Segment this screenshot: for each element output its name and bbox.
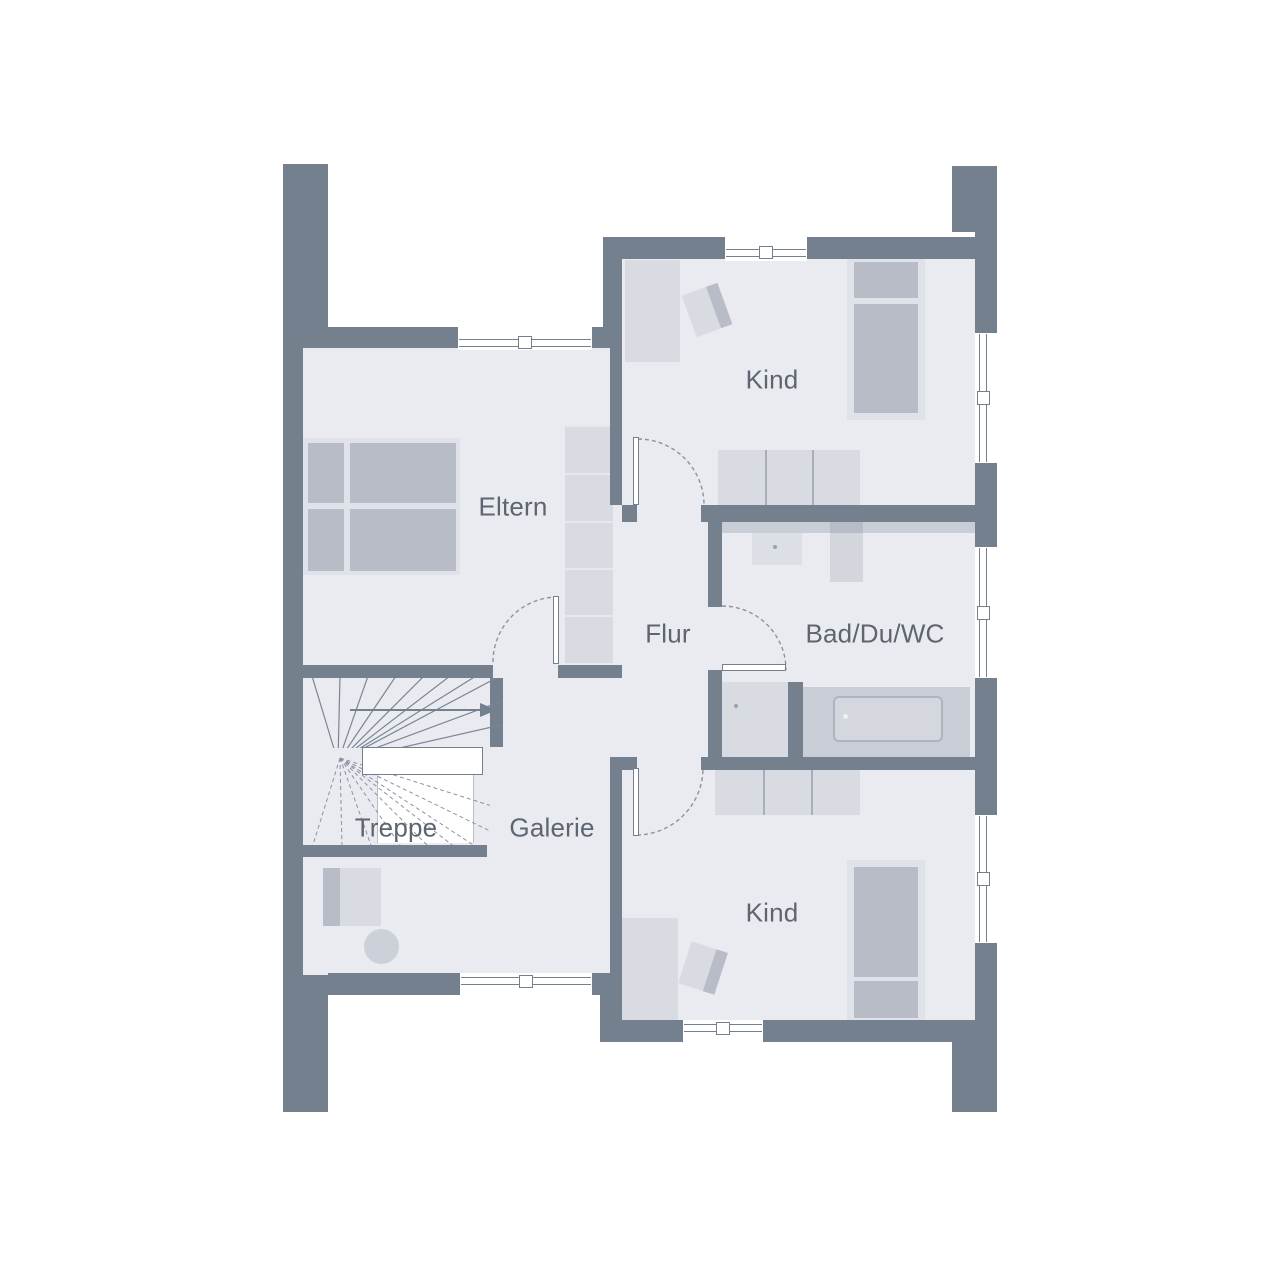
- room-label-kind-bottom: Kind: [746, 898, 799, 929]
- floor-plan: Kind Eltern Flur Bad/Du/WC Treppe Galeri…: [0, 0, 1280, 1280]
- door-leaf-bad: [722, 664, 786, 671]
- room-label-eltern: Eltern: [478, 492, 547, 523]
- room-label-flur: Flur: [645, 619, 691, 650]
- door-leaf-eltern: [553, 596, 559, 664]
- room-label-bad-du-wc: Bad/Du/WC: [805, 619, 944, 650]
- stairs-and-door-arcs: [0, 0, 1280, 1280]
- door-leaf-kind-top: [633, 437, 639, 505]
- stair-landing: [362, 747, 483, 775]
- stair-direction-arrow: [350, 703, 497, 717]
- room-label-galerie: Galerie: [509, 813, 594, 844]
- room-label-kind-top: Kind: [746, 365, 799, 396]
- door-leaf-kind-bottom: [633, 768, 639, 836]
- room-label-treppe: Treppe: [355, 813, 438, 844]
